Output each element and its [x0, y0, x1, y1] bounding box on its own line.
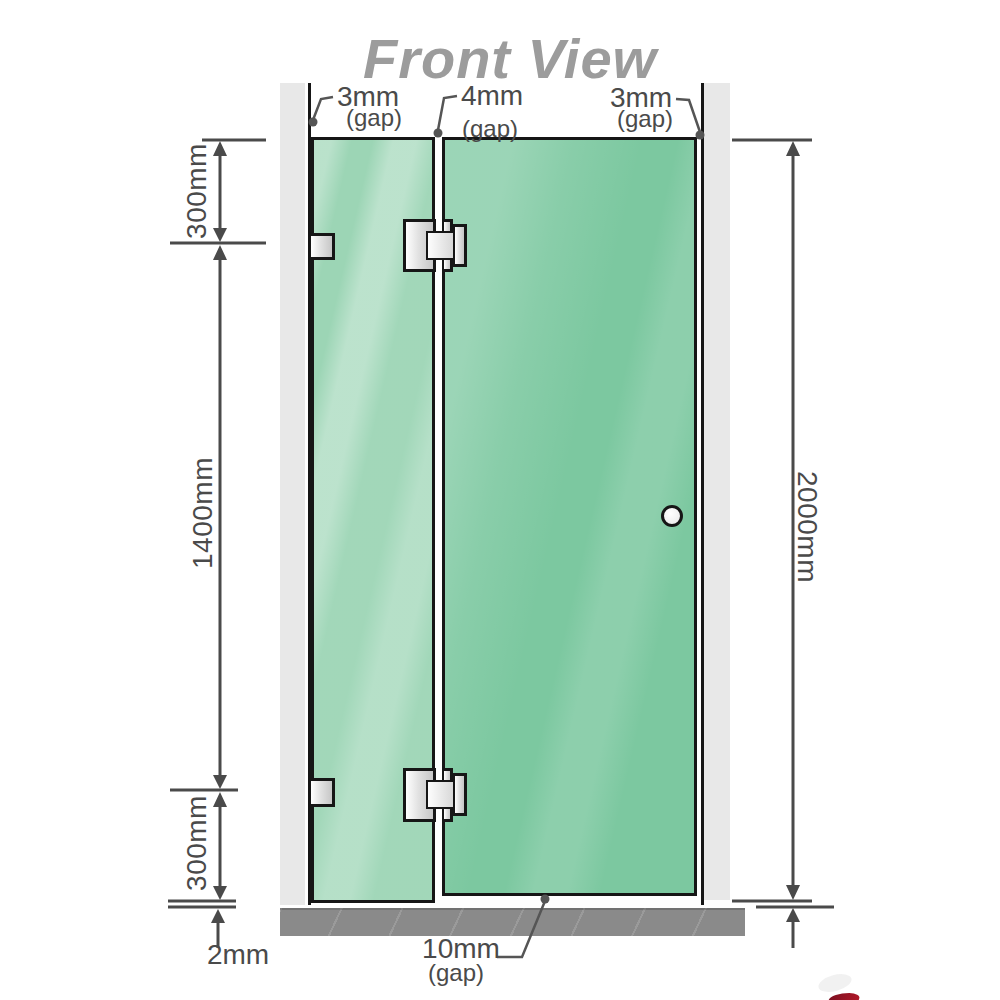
front-view-diagram: Front View: [0, 0, 1000, 1000]
gap-label-top-right-note: (gap): [617, 105, 673, 133]
floor-clearance-label-2mm: 2mm: [207, 939, 269, 971]
dimension-label-bottom-300mm: 300mm: [181, 795, 213, 891]
gap-leader-lines: [309, 96, 705, 957]
dimension-label-middle-1400mm: 1400mm: [187, 457, 219, 569]
gap-label-top-middle-value: 4mm: [461, 80, 523, 112]
dimension-annotations: [0, 0, 1000, 1000]
dimension-label-top-300mm: 300mm: [181, 143, 213, 239]
dimension-label-total-2000mm: 2000mm: [791, 471, 823, 583]
gap-label-top-middle-note: (gap): [462, 115, 518, 143]
gap-label-top-left-note: (gap): [346, 104, 402, 132]
gap-label-bottom-note: (gap): [428, 959, 484, 987]
